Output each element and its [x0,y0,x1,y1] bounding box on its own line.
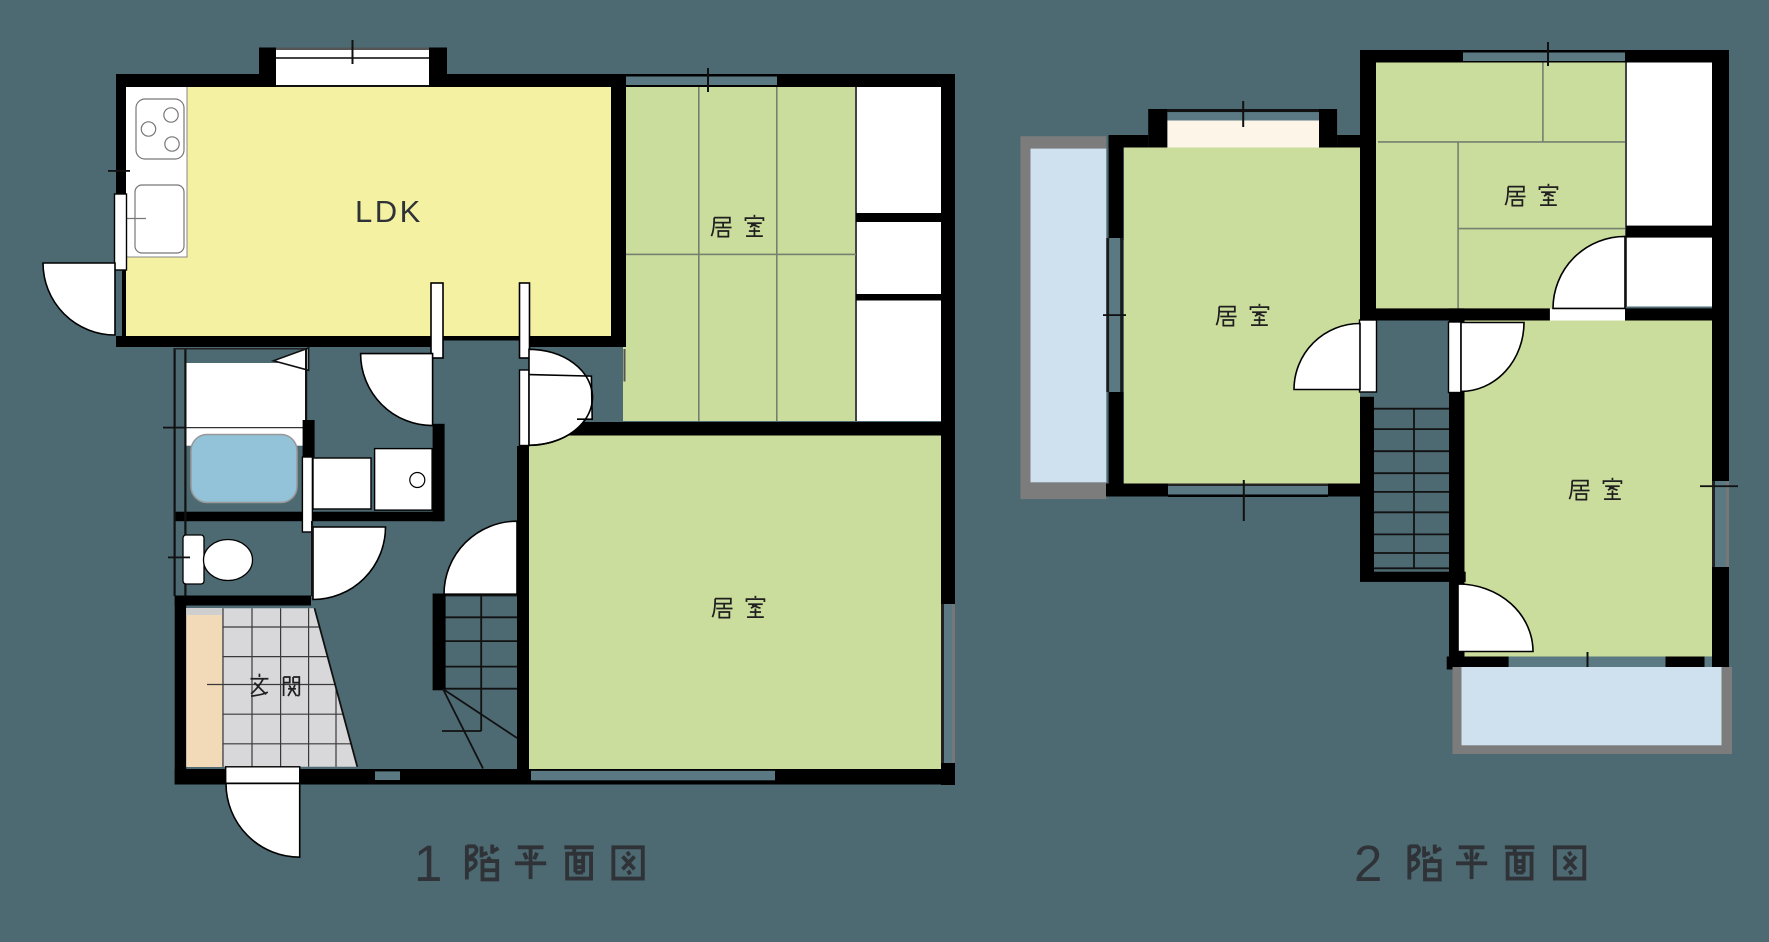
svg-text:1: 1 [414,835,442,892]
svg-text:2: 2 [1354,835,1382,892]
svg-text:LDK: LDK [355,194,423,229]
